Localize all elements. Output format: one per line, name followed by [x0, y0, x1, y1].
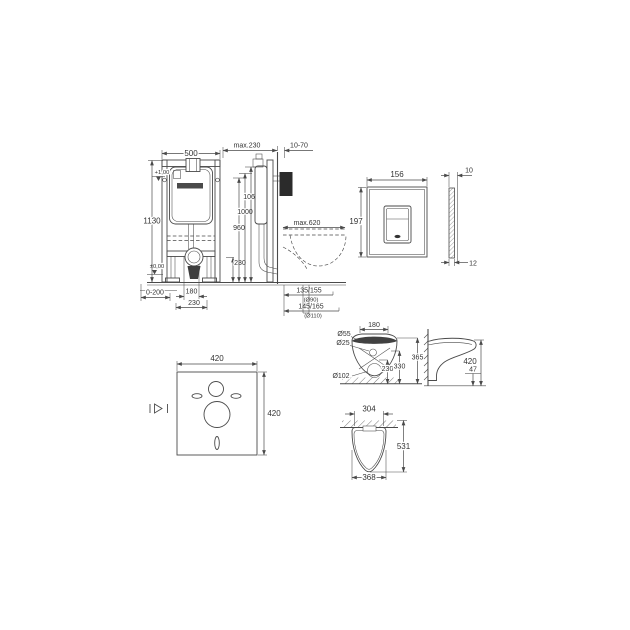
dim-plate-offset-top: 10	[441, 168, 473, 188]
dim-label: 365	[412, 355, 424, 362]
dim-label: 145/165	[298, 304, 323, 311]
dim-drain-heights: 135/155 (Ø90) 145/165 (Ø110)	[284, 285, 339, 320]
dim-label: 330	[394, 364, 406, 371]
wc-dashed-silhouette	[283, 229, 346, 269]
sound-insulation-mat	[177, 372, 257, 455]
dim-label: 531	[397, 442, 411, 451]
wall-block-dark	[280, 172, 293, 196]
dim-label: 230	[382, 366, 394, 373]
dim-depth-max: max.620	[283, 220, 345, 228]
level-triangle-icon	[152, 270, 157, 275]
dim-label: 180	[186, 289, 198, 296]
dim-mat-width: 420	[177, 354, 257, 371]
dim-outlet-height: 230	[226, 258, 246, 283]
outlet-bend-dark	[188, 266, 201, 279]
dim-label: max.230	[234, 143, 261, 150]
outlet-bend-circle	[185, 248, 203, 266]
mat-thickness-icon	[150, 404, 168, 413]
floor-hatch	[342, 378, 398, 384]
dim-feet-range: 0-200	[141, 284, 170, 301]
dim-rod-spacing: 180	[176, 283, 207, 300]
dim-plate-offset-bottom: 12	[441, 259, 477, 268]
dim-label: 47	[469, 367, 477, 374]
dim-wc-height-365: 365	[397, 338, 423, 384]
wc-back-view	[340, 334, 422, 384]
dim-wc-bolt-spacing: 180	[360, 322, 388, 333]
dim-label: Ø102	[332, 373, 349, 380]
dim-label: 420	[267, 409, 281, 418]
dim-wc-clearance-47: 47	[465, 367, 481, 386]
dim-top-clearance: max.230	[223, 143, 277, 159]
flush-plate-front-view	[367, 187, 427, 257]
dim-label: 0-200	[146, 290, 164, 297]
dim-label: 1000	[237, 209, 253, 216]
dim-wall-thickness: 10-70	[285, 143, 314, 159]
dim-label: 500	[184, 149, 198, 158]
dim-plate-height: 197	[349, 188, 366, 258]
dim-label: 197	[349, 217, 363, 226]
wc-side-view	[424, 329, 486, 386]
level-triangle-icon	[156, 177, 161, 182]
dim-label: max.620	[294, 220, 321, 227]
cistern-label-band	[177, 183, 203, 189]
level-upper-label: +1,00	[155, 170, 170, 176]
dim-label: 230	[234, 260, 246, 267]
dim-note: (Ø110)	[304, 314, 322, 320]
dim-label: 230	[188, 300, 200, 307]
dim-label: 10	[465, 168, 473, 175]
dim-label: 304	[362, 405, 376, 414]
technical-drawing-page: +1,00 ±0,00 500 1130 0-200 180 230	[0, 0, 630, 630]
dim-label: 180	[368, 322, 380, 329]
dim-frame-width: 500	[162, 149, 220, 159]
dim-label: Ø55	[337, 331, 350, 338]
dim-label: Ø25	[336, 340, 349, 347]
dim-label: 135/155	[296, 288, 321, 295]
dim-label: 156	[390, 170, 404, 179]
dim-label: 10-70	[290, 143, 308, 150]
dim-plate-width: 156	[367, 170, 427, 186]
dim-label: 960	[233, 225, 245, 232]
wc-installation-drawing: +1,00 ±0,00 500 1130 0-200 180 230	[0, 0, 630, 630]
dim-label: 420	[210, 354, 224, 363]
dim-label: 420	[463, 357, 477, 366]
wc-top-view	[340, 421, 398, 472]
dim-outlet-offset: 230	[176, 300, 207, 310]
dim-mat-height: 420	[258, 372, 281, 455]
dim-label: 12	[469, 261, 477, 268]
plate-logo-oval	[395, 235, 401, 238]
dim-label: 1130	[143, 217, 161, 226]
dim-label: 368	[362, 473, 376, 482]
flush-plate-side-view	[449, 183, 458, 263]
